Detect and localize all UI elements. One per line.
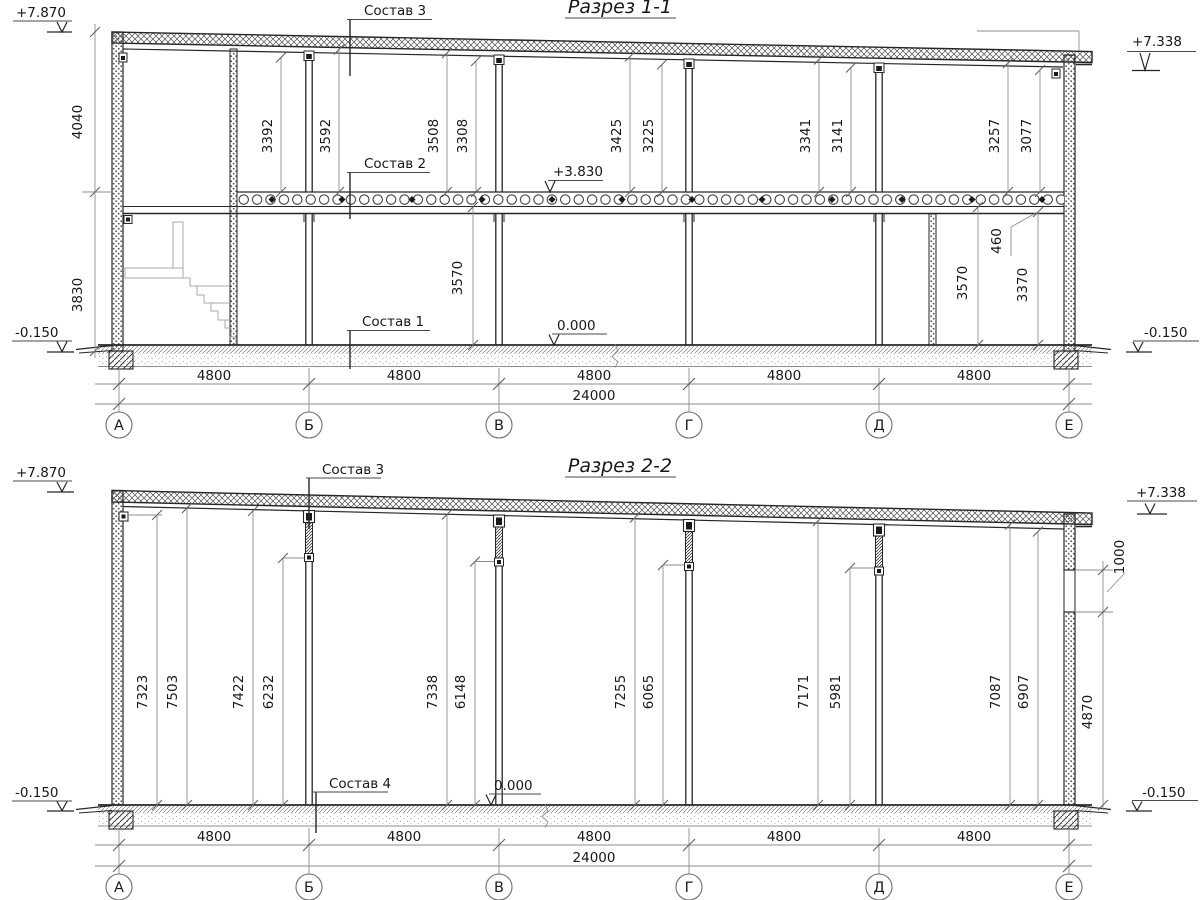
axis-bubble-label: Е [1064,418,1073,434]
dim-label: 3570 [450,261,466,295]
callout-label: Состав 4 [329,776,391,792]
callout-label: Состав 1 [362,314,424,330]
dimension-texts-2: 7323 7503 7422 6232 7338 6148 7255 6065 … [135,540,1128,729]
dim-label: 7338 [425,675,441,709]
axis-bubble-label: Б [304,418,314,434]
ground-floor-2 [76,805,1111,830]
elevation-label: 0.000 [494,778,533,794]
dim-label: 3508 [426,119,442,153]
axis-bubbles-2: А Б В Г Д Е [106,874,1082,900]
span-dim: 4800 [197,829,231,845]
axis-dimensions-1: 4800 4800 4800 4800 4800 24000 [95,368,1092,412]
elevation-label: -0.150 [15,785,59,801]
dim-label: 1000 [1112,540,1128,574]
span-dim: 4800 [577,368,611,384]
columns-2 [304,511,885,806]
dimension-texts-1: 4040 3830 3392 3592 3508 3308 3425 3225 … [70,105,1035,312]
elevation-label: +7.338 [1132,34,1182,50]
elevation-label: +7.870 [16,5,66,21]
layer-callouts-1: Состав 3 Состав 2 Состав 1 [347,3,432,369]
walls-2 [112,491,1075,806]
total-span-dim: 24000 [573,850,616,866]
dim-label: 3392 [260,119,276,153]
span-dim: 4800 [197,368,231,384]
dim-label: 3257 [987,119,1003,153]
dim-label: 7422 [231,675,247,709]
dim-label: 4870 [1080,695,1096,729]
dim-label: 7255 [613,675,629,709]
axis-bubble-label: В [494,880,504,896]
axis-bubbles-1: А Б В Г Д Е [106,412,1082,438]
section-1-1-title: Разрез 1-1 [568,0,672,18]
axis-bubble-label: Д [873,418,884,434]
dim-label: 3830 [70,278,86,312]
callout-label: Состав 2 [364,156,426,172]
span-dim: 4800 [957,829,991,845]
dim-label: 3308 [455,119,471,153]
roof-slab-2 [112,491,1092,530]
dim-label: 3225 [641,119,657,153]
span-dim: 4800 [767,829,801,845]
callout-label: Состав 3 [364,3,426,19]
callout-label: Состав 3 [322,462,384,478]
dim-label: 3570 [955,266,971,300]
elevation-label: 0.000 [557,318,596,334]
elevation-label: +7.870 [16,465,66,481]
span-dim: 4800 [577,829,611,845]
sections-drawing: Разрез 1-1 [0,0,1200,900]
axis-bubble-label: В [494,418,504,434]
axis-bubble-label: Е [1064,880,1073,896]
ground-floor-1 [76,345,1111,370]
elevation-label: +7.338 [1136,485,1186,501]
dim-label: 7323 [135,675,151,709]
elevation-label: -0.150 [1142,785,1186,801]
dim-label: 3425 [609,119,625,153]
axis-bubble-label: А [114,418,124,434]
dim-label: 6232 [261,675,277,709]
dim-label: 5981 [828,675,844,709]
dim-label: 7087 [988,675,1004,709]
span-dim: 4800 [957,368,991,384]
drawing-sheet: Разрез 1-1 [0,0,1200,900]
elevation-label: -0.150 [1144,325,1188,341]
axis-bubble-label: А [114,880,124,896]
dim-label: 3341 [798,119,814,153]
floor-slab-2nd [123,192,1064,214]
span-dim: 4800 [767,368,801,384]
axis-bubble-label: Г [685,418,694,434]
dim-label: 6065 [641,675,657,709]
section-2-2-title: Разрез 2-2 [568,455,672,477]
dim-label: 460 [989,228,1005,254]
dim-label: 3141 [830,119,846,153]
dim-label: 6907 [1016,675,1032,709]
layer-callouts-2: Состав 3 Состав 4 [306,462,391,833]
witness-lines-2 [128,503,1125,810]
elevation-label: -0.150 [15,325,59,341]
axis-bubble-label: Д [873,880,884,896]
dim-label: 6148 [453,675,469,709]
dim-label: 3077 [1019,119,1035,153]
dim-label: 3370 [1015,268,1031,302]
axis-bubble-label: Б [304,880,314,896]
dim-label: 7171 [796,675,812,709]
dim-label: 4040 [70,105,86,139]
span-dim: 4800 [387,829,421,845]
staircase [125,222,236,345]
roof-slab-1 [112,32,1092,67]
dim-label: 7503 [165,675,181,709]
section-1-1: Разрез 1-1 [12,0,1199,438]
dim-label: 3592 [318,119,334,153]
span-dim: 4800 [387,368,421,384]
total-span-dim: 24000 [573,388,616,404]
section-2-2: Разрез 2-2 [12,455,1198,900]
axis-dimensions-2: 4800 4800 4800 4800 4800 24000 [95,828,1092,874]
elevation-label: +3.830 [553,164,603,180]
axis-bubble-label: Г [685,880,694,896]
